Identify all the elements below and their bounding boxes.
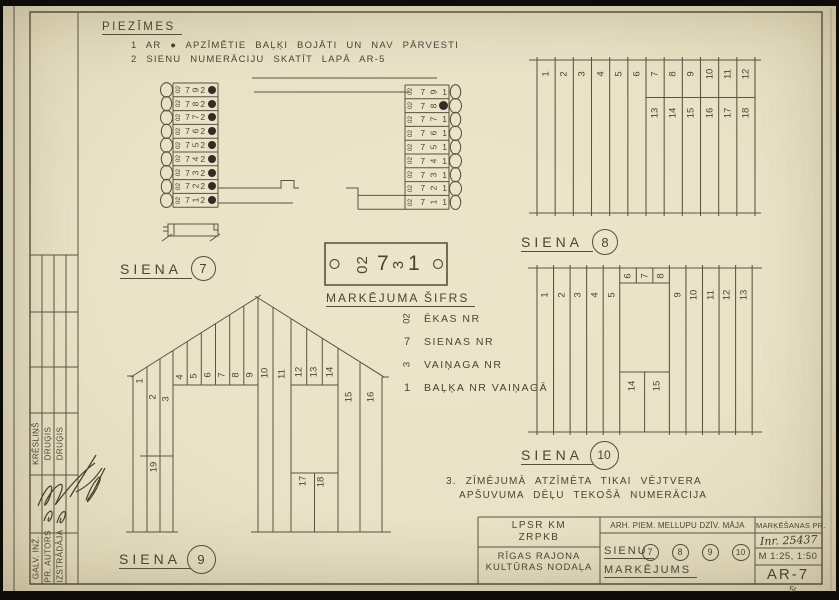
beam-code-siena: 7 <box>420 142 425 152</box>
siena8-plank-number: 7 <box>650 71 661 76</box>
siena10-plank-number: 12 <box>722 290 733 301</box>
siena8-plank-number: 11 <box>722 69 733 79</box>
siena7-left-beam-label: 02712 <box>173 193 218 207</box>
stamp-code-ekas: 02 <box>354 255 371 274</box>
log-end-scallop <box>161 179 171 193</box>
siena7-right-beam-label: 02761 <box>405 126 449 140</box>
beam-code-siena: 7 <box>185 126 190 136</box>
beam-code-vainags: 5 <box>190 143 200 148</box>
beam-code-ekas: 02 <box>175 141 182 148</box>
siena8-plank-number: 13 <box>650 108 661 119</box>
log-end-scallop <box>450 168 460 182</box>
siena10-plank-number: 5 <box>606 292 617 297</box>
log-end-scallop <box>450 140 460 154</box>
log-end-scallop <box>161 124 171 138</box>
siena9-plank-number: 14 <box>325 367 336 378</box>
damaged-beam-dot <box>208 155 216 163</box>
beam-code-vainags: 5 <box>429 145 439 150</box>
beam-code-ekas: 02 <box>175 197 182 204</box>
marking-header: MARĶĒŠANAS PR. <box>756 521 820 530</box>
beam-code-balkis: 1 <box>442 142 447 152</box>
wall-number-badge: 7 <box>642 544 659 561</box>
siena9-number-badge: 9 <box>187 545 216 574</box>
siena10-plank-number: 10 <box>689 290 700 301</box>
log-end-scallop <box>161 110 173 124</box>
sheet-code: AR-7 <box>756 566 820 583</box>
log-end-scallop <box>161 193 173 207</box>
siena7-right-beam-label: 02731 <box>405 168 449 182</box>
beam-code-vainags: 6 <box>429 131 439 136</box>
siena7-left-beam-label: 02742 <box>173 152 218 166</box>
siena7-right-beam-label: 02751 <box>405 140 449 154</box>
beam-code-vainags: 2 <box>190 184 200 189</box>
beam-code-balkis: 2 <box>200 181 205 191</box>
damaged-beam-dot <box>208 100 216 108</box>
siena7-left-beam-label: 02762 <box>173 124 218 138</box>
damaged-beam-dot <box>208 127 216 135</box>
siena7-left-beam-label: 02792 <box>173 83 218 97</box>
log-end-scallop <box>161 152 171 166</box>
corner-mark: 5r <box>789 584 797 594</box>
log-end-scallop <box>450 99 462 113</box>
signature-role: IZSTRĀDĀJA <box>56 533 65 583</box>
stamp-title: MARKĒJUMA ŠIFRS <box>326 291 475 307</box>
beam-code-vainags: 1 <box>190 198 200 203</box>
beam-code-siena: 7 <box>185 168 190 178</box>
beam-code-vainags: 9 <box>429 90 439 95</box>
siena9-plank-number: 16 <box>366 392 377 403</box>
log-end-scallop <box>450 85 460 99</box>
signature-name: DRUĢIS <box>44 419 53 469</box>
legend-row: 3 VAIŅAGA NR <box>398 357 502 372</box>
beam-code-balkis: 1 <box>442 197 447 207</box>
siena9-plank-number: 7 <box>217 372 228 377</box>
note-line-3b: APŠUVUMA DĒĻU TEKOŠĀ NUMERĀCIJA <box>459 490 707 501</box>
siena9-plank-number: 12 <box>294 367 305 378</box>
siena10-plank-number: 4 <box>589 292 600 297</box>
siena10-plank-number: 1 <box>540 292 551 297</box>
siena7-title: SIENA <box>120 261 192 279</box>
wall-number-badge: 10 <box>732 544 750 561</box>
beam-code-ekas: 02 <box>407 185 414 192</box>
siena8-plank-number: 3 <box>577 71 588 76</box>
siena7-right-beam-label: 02721 <box>405 182 449 196</box>
siena10-number-badge: 10 <box>590 441 619 470</box>
siena10-plank-number: 11 <box>705 290 716 300</box>
log-end-scallop <box>161 97 171 111</box>
siena10-plank-number: 6 <box>623 273 634 278</box>
scale-value: M 1:25, 1:50 <box>756 551 820 562</box>
beam-code-balkis: 1 <box>442 156 447 166</box>
inventory-number: Inr. 25437 <box>760 533 818 548</box>
damaged-beam-dot <box>208 169 216 177</box>
siena9-plank-number: 9 <box>245 372 256 377</box>
beam-code-ekas: 02 <box>175 155 182 162</box>
beam-code-siena: 7 <box>420 128 425 138</box>
dept-name-line1: RĪGAS RAJONA <box>478 551 600 562</box>
siena9-plank-number: 3 <box>161 396 172 401</box>
siena9-plank-number: 5 <box>189 373 200 378</box>
beam-code-ekas: 02 <box>407 199 414 206</box>
legend-row: 1 BAĻĶA NR VAIŅAGĀ <box>398 380 548 395</box>
beam-code-balkis: 2 <box>200 140 205 150</box>
siena9-plank-number: 18 <box>316 477 327 488</box>
siena8-number-badge: 8 <box>592 229 618 255</box>
beam-code-balkis: 1 <box>442 170 447 180</box>
siena7-number-badge: 7 <box>191 256 216 281</box>
siena8-plank-number: 2 <box>559 71 570 76</box>
sheet-subject: MARKĒJUMS <box>604 564 697 578</box>
siena8-plank-number: 10 <box>704 69 715 80</box>
siena7-left-beam-label: 02782 <box>173 97 218 111</box>
legend-label: SIENAS NR <box>424 336 494 348</box>
org-name-line1: LPSR KM <box>478 520 600 531</box>
stamp-code: 02 7 3 1 <box>336 244 437 284</box>
beam-code-vainags: 6 <box>190 129 200 134</box>
beam-code-balkis: 2 <box>200 154 205 164</box>
siena7-right-beam-label: 02771 <box>405 113 449 127</box>
log-end-scallop <box>161 83 173 97</box>
beam-code-ekas: 02 <box>407 171 414 178</box>
siena10-plank-number: 13 <box>738 290 749 301</box>
siena9-plank-number: 13 <box>309 367 320 378</box>
beam-code-ekas: 02 <box>175 128 182 135</box>
siena8-plank-number: 1 <box>541 71 552 76</box>
beam-code-vainags: 7 <box>429 117 439 122</box>
beam-code-vainags: 8 <box>190 101 200 106</box>
beam-code-ekas: 02 <box>407 130 414 137</box>
beam-code-balkis: 2 <box>200 99 205 109</box>
stamp-code-vainags: 3 <box>390 259 407 268</box>
beam-code-balkis: 1 <box>442 87 447 97</box>
beam-code-vainags: 3 <box>429 172 439 177</box>
dept-name-line2: KULTŪRAS NODAĻA <box>478 562 600 573</box>
log-end-scallop <box>450 181 462 195</box>
project-name: ARH. PIEM. MELLUPU DZĪV. MĀJA <box>601 521 754 530</box>
siena7-right-beam-label: 02741 <box>405 154 449 168</box>
beam-code-siena: 7 <box>420 87 425 97</box>
siena8-plank-number: 4 <box>595 71 606 76</box>
siena8-plank-number: 9 <box>686 71 697 76</box>
siena8-plank-number: 14 <box>668 108 679 119</box>
siena9-plank-number: 17 <box>298 476 309 487</box>
signature-role: PR. AUTORS <box>44 533 53 583</box>
damaged-beam-dot <box>208 113 216 121</box>
beam-code-vainags: 7 <box>190 115 200 120</box>
siena8-plank-number: 5 <box>613 71 624 76</box>
beam-code-siena: 7 <box>420 114 425 124</box>
beam-code-ekas: 02 <box>407 116 414 123</box>
beam-code-vainags: 1 <box>429 200 439 205</box>
beam-code-ekas: 02 <box>175 86 182 93</box>
siena8-plank-number: 17 <box>722 108 733 119</box>
drawing-sheet: PIEZĪMES 1 AR ● APZĪMĒTIE BAĻĶI BOJĀTI U… <box>0 0 839 600</box>
legend-row: 02 ĒKAS NR <box>398 311 481 326</box>
legend-key: 1 <box>398 382 416 394</box>
beam-code-siena: 7 <box>185 195 190 205</box>
signature-name: KRĒSLIŅŠ <box>32 419 41 469</box>
siena7-right-beam-label: 02791 <box>405 85 449 99</box>
siena7-left-beam-label: 02752 <box>173 138 218 152</box>
beam-code-ekas: 02 <box>175 169 182 176</box>
beam-code-balkis: 2 <box>200 85 205 95</box>
legend-label: BAĻĶA NR VAIŅAGĀ <box>424 382 548 394</box>
damaged-beam-dot <box>439 101 448 110</box>
beam-code-ekas: 02 <box>407 88 414 95</box>
log-end-scallop <box>161 138 173 152</box>
beam-code-siena: 7 <box>420 170 425 180</box>
beam-code-vainags: 3 <box>190 170 200 175</box>
stamp-code-balkis: 1 <box>408 252 420 276</box>
log-end-scallop <box>161 166 173 180</box>
siena10-plank-number: 8 <box>656 273 667 278</box>
generated-grid-lines <box>161 57 756 435</box>
damaged-beam-dot <box>208 86 216 94</box>
beam-code-siena: 7 <box>185 140 190 150</box>
beam-code-siena: 7 <box>185 85 190 95</box>
signature-name: DRUĢIS <box>56 419 65 469</box>
beam-code-vainags: 4 <box>429 159 439 164</box>
siena8-plank-number: 18 <box>740 108 751 119</box>
legend-key: 02 <box>402 310 413 328</box>
log-end-scallop <box>450 112 460 126</box>
damaged-beam-dot <box>208 196 216 204</box>
beam-code-siena: 7 <box>420 156 425 166</box>
beam-code-balkis: 2 <box>200 126 205 136</box>
beam-code-balkis: 1 <box>442 114 447 124</box>
siena9-plank-number: 10 <box>260 368 271 379</box>
siena9-plank-number: 1 <box>135 378 146 383</box>
damaged-beam-dot <box>208 182 216 190</box>
log-end-scallop <box>450 126 462 140</box>
beam-code-balkis: 1 <box>442 183 447 193</box>
beam-code-vainags: 4 <box>190 157 200 162</box>
siena9-plank-number: 8 <box>231 372 242 377</box>
siena9-plank-number: 15 <box>344 392 355 403</box>
siena9-plank-number: 11 <box>277 369 288 379</box>
beam-code-siena: 7 <box>420 197 425 207</box>
legend-key: 7 <box>398 336 416 348</box>
beam-code-vainags: 2 <box>429 186 439 191</box>
siena8-title: SIENA <box>521 234 593 252</box>
siena10-plank-number: 9 <box>672 292 683 297</box>
siena9-plank-number: 19 <box>149 462 160 473</box>
note-line-3a: 3. ZĪMĒJUMĀ ATZĪMĒTA TIKAI VĒJTVERA <box>446 476 702 487</box>
siena10-plank-number: 3 <box>573 292 584 297</box>
siena8-plank-number: 8 <box>668 71 679 76</box>
wall-number-badge: 9 <box>702 544 719 561</box>
siena7-left-beam-label: 02772 <box>173 111 218 125</box>
beam-code-ekas: 02 <box>175 183 182 190</box>
siena8-plank-number: 6 <box>631 71 642 76</box>
legend-row: 7 SIENAS NR <box>398 334 494 349</box>
siena8-plank-number: 16 <box>704 108 715 119</box>
beam-code-balkis: 2 <box>200 195 205 205</box>
siena10-plank-number: 7 <box>639 273 650 278</box>
org-name-line2: ZRPKB <box>478 532 600 543</box>
notes-title: PIEZĪMES <box>102 21 182 35</box>
siena10-plank-number: 14 <box>627 381 638 392</box>
legend-label: ĒKAS NR <box>424 313 481 325</box>
beam-code-balkis: 1 <box>442 128 447 138</box>
siena10-title: SIENA <box>521 447 593 465</box>
beam-code-balkis: 2 <box>200 112 205 122</box>
beam-code-balkis: 2 <box>200 168 205 178</box>
siena10-plank-number: 2 <box>556 292 567 297</box>
beam-code-vainags: 8 <box>429 103 439 108</box>
beam-code-ekas: 02 <box>407 157 414 164</box>
beam-code-siena: 7 <box>185 99 190 109</box>
siena10-plank-number: 15 <box>652 381 663 392</box>
beam-code-siena: 7 <box>185 181 190 191</box>
siena7-left-beam-label: 02722 <box>173 180 218 194</box>
log-end-scallop <box>450 154 462 168</box>
siena9-plank-number: 4 <box>175 374 186 379</box>
note-line-1: 1 AR ● APZĪMĒTIE BAĻĶI BOJĀTI UN NAV PĀR… <box>131 40 459 51</box>
siena8-plank-number: 15 <box>686 108 697 119</box>
beam-code-siena: 7 <box>420 183 425 193</box>
siena9-plank-number: 6 <box>203 372 214 377</box>
beam-code-vainags: 9 <box>190 88 200 93</box>
damaged-beam-dot <box>208 141 216 149</box>
siena8-plank-number: 12 <box>740 69 751 80</box>
siena9-plank-number: 2 <box>148 394 159 399</box>
beam-code-ekas: 02 <box>175 100 182 107</box>
legend-key: 3 <box>402 356 413 374</box>
beam-code-siena: 7 <box>420 101 425 111</box>
wall-number-badge: 8 <box>672 544 689 561</box>
beam-code-ekas: 02 <box>407 143 414 150</box>
stamp-code-siena: 7 <box>377 252 389 276</box>
beam-code-siena: 7 <box>185 154 190 164</box>
note-line-2: 2 SIENU NUMERĀCIJU SKATĪT LAPĀ AR-5 <box>131 54 386 65</box>
log-end-scallop <box>450 195 460 209</box>
beam-code-siena: 7 <box>185 112 190 122</box>
siena7-right-beam-label: 02711 <box>405 195 449 209</box>
legend-label: VAIŅAGA NR <box>424 359 502 371</box>
siena9-title: SIENA <box>119 551 191 569</box>
beam-code-ekas: 02 <box>407 102 414 109</box>
beam-code-ekas: 02 <box>175 114 182 121</box>
siena7-left-beam-label: 02732 <box>173 166 218 180</box>
signature-role: GALV. INŽ. <box>32 533 41 583</box>
